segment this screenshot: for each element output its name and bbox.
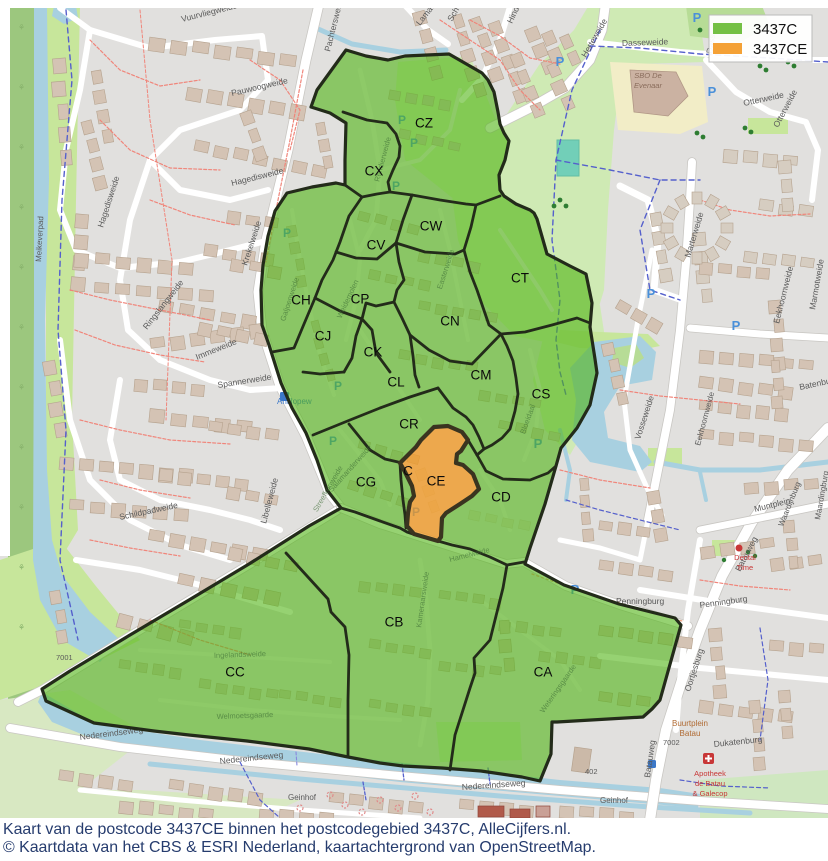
svg-text:CS: CS: [532, 387, 551, 402]
svg-text:SBO De: SBO De: [634, 71, 662, 80]
svg-text:P: P: [693, 10, 702, 25]
svg-text:CD: CD: [491, 490, 511, 505]
svg-text:© Kaartdata van het CBS & ESRI: © Kaartdata van het CBS & ESRI Nederland…: [3, 839, 596, 856]
svg-text:⚘: ⚘: [18, 23, 25, 32]
svg-text:⚘: ⚘: [18, 503, 25, 512]
svg-text:Batau: Batau: [680, 729, 701, 738]
svg-text:& Galecop: & Galecop: [692, 789, 727, 798]
svg-text:P: P: [556, 54, 565, 69]
svg-text:CX: CX: [365, 164, 384, 179]
svg-text:3437CE: 3437CE: [753, 41, 807, 58]
svg-text:P: P: [647, 286, 656, 301]
svg-text:CR: CR: [399, 417, 419, 432]
svg-text:7002: 7002: [663, 738, 680, 747]
svg-text:Time: Time: [737, 563, 753, 572]
svg-text:Apotheek: Apotheek: [694, 769, 726, 778]
svg-text:CE: CE: [427, 474, 446, 489]
svg-text:⚘: ⚘: [18, 143, 25, 152]
svg-text:⚘: ⚘: [18, 323, 25, 332]
svg-text:⚘: ⚘: [18, 563, 25, 572]
svg-text:⚘: ⚘: [18, 383, 25, 392]
svg-text:Geinhof: Geinhof: [288, 793, 317, 802]
svg-text:de Batau: de Batau: [695, 779, 725, 788]
svg-text:Dasseweide: Dasseweide: [622, 36, 669, 48]
svg-text:CW: CW: [420, 219, 443, 234]
svg-text:⚘: ⚘: [18, 263, 25, 272]
svg-text:CN: CN: [440, 314, 460, 329]
svg-text:CB: CB: [385, 615, 404, 630]
svg-text:CC: CC: [225, 665, 245, 680]
svg-text:CZ: CZ: [415, 116, 433, 131]
svg-text:Buurtplein: Buurtplein: [672, 719, 708, 728]
svg-text:CT: CT: [511, 271, 529, 286]
svg-text:P: P: [708, 84, 717, 99]
svg-text:CL: CL: [387, 375, 405, 390]
svg-text:⚘: ⚘: [18, 203, 25, 212]
svg-text:CV: CV: [367, 238, 386, 253]
svg-text:CG: CG: [356, 475, 376, 490]
svg-text:Dental: Dental: [734, 553, 756, 562]
svg-text:Geinhof: Geinhof: [600, 796, 629, 805]
svg-text:CJ: CJ: [315, 329, 332, 344]
svg-text:3437C: 3437C: [753, 21, 797, 38]
svg-text:Ingelandsweide: Ingelandsweide: [214, 649, 266, 660]
svg-text:⚘: ⚘: [18, 83, 25, 92]
svg-text:⚘: ⚘: [18, 623, 25, 632]
svg-text:Evenaar: Evenaar: [634, 81, 662, 90]
svg-text:402: 402: [585, 767, 598, 776]
svg-text:CK: CK: [364, 345, 383, 360]
svg-text:7001: 7001: [56, 653, 73, 662]
svg-text:CH: CH: [291, 293, 311, 308]
svg-text:CP: CP: [351, 292, 370, 307]
svg-text:Kaart van de postcode 3437CE b: Kaart van de postcode 3437CE binnen het …: [3, 821, 571, 838]
svg-text:⚘: ⚘: [18, 443, 25, 452]
svg-text:P: P: [732, 318, 741, 333]
svg-text:CA: CA: [534, 665, 553, 680]
svg-text:C: C: [403, 464, 413, 479]
svg-text:CM: CM: [471, 368, 492, 383]
